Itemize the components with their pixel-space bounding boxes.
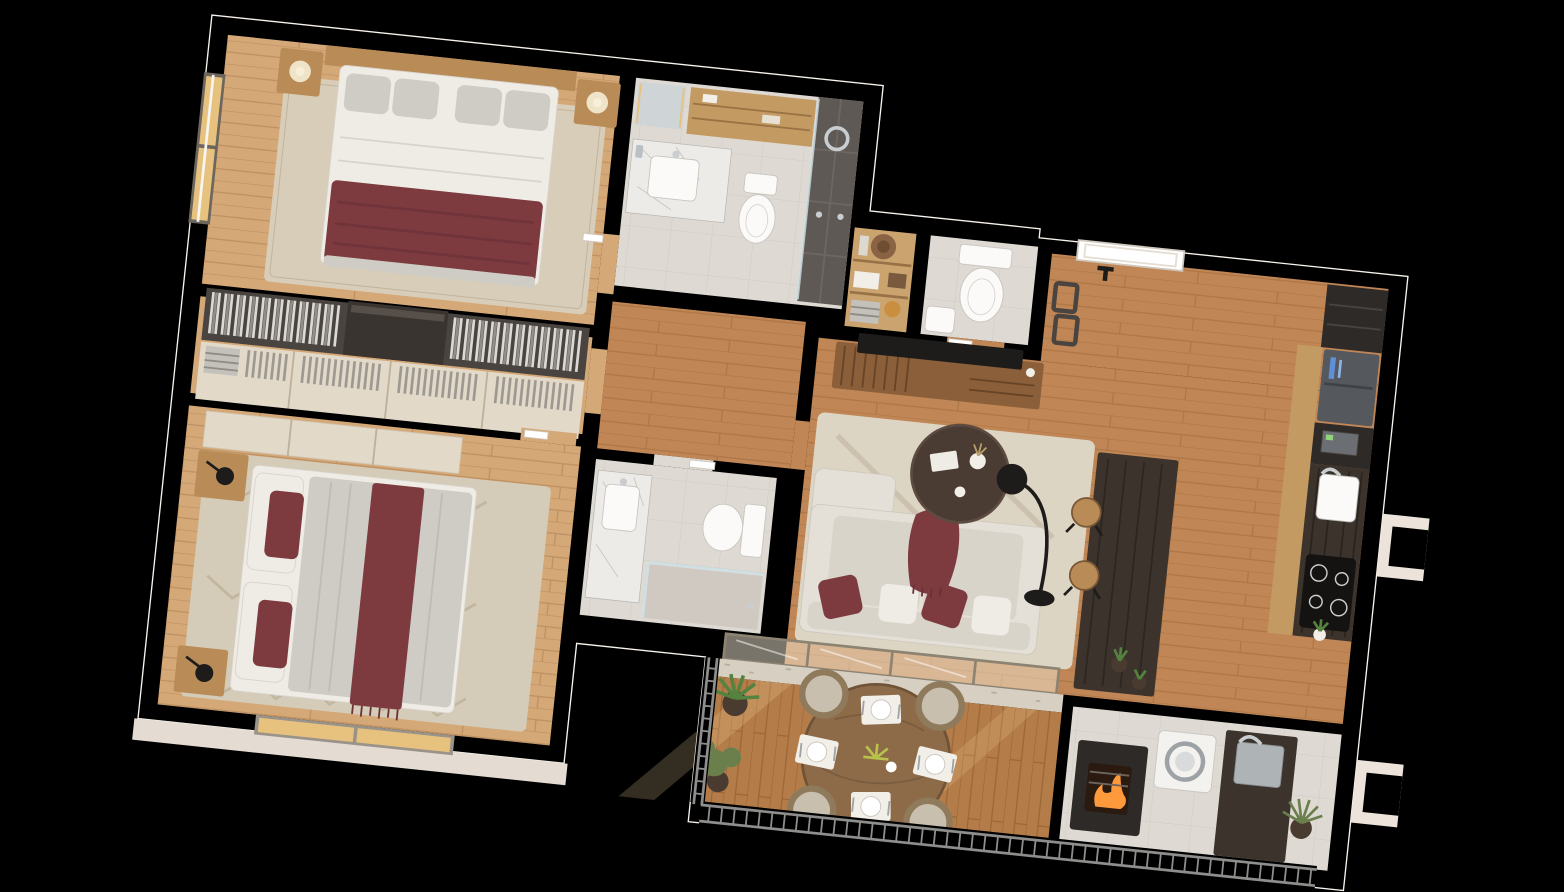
oven-microwave-tower xyxy=(1310,422,1373,469)
towel-stack xyxy=(849,299,880,323)
folded-clothes xyxy=(203,346,240,376)
pillow xyxy=(391,78,440,120)
bathroom-2 xyxy=(580,448,778,633)
wall-cabinets xyxy=(1321,284,1388,353)
place-setting xyxy=(858,691,905,729)
burgundy-pillow xyxy=(252,599,293,669)
bedroom2-nightstand-bottom xyxy=(173,645,228,697)
washing-machine xyxy=(1153,730,1216,793)
ensuite-mirror xyxy=(635,82,686,130)
render-canvas: 3D rendered top-down floor plan of a two… xyxy=(0,0,1564,892)
pillow xyxy=(502,89,551,131)
master-nightstand-left xyxy=(276,48,324,97)
burgundy-pillow xyxy=(264,490,305,560)
leather-box xyxy=(887,273,906,289)
laundry-counter xyxy=(1213,730,1298,863)
master-bedroom xyxy=(182,33,622,325)
pillow xyxy=(454,84,503,126)
book xyxy=(930,450,959,472)
white-box xyxy=(853,271,880,290)
induction-cooktop xyxy=(1299,554,1357,633)
floor-plan-render: 3D rendered top-down floor plan of a two… xyxy=(0,0,1564,892)
pillow xyxy=(343,73,392,115)
refrigerator xyxy=(1317,349,1380,426)
master-bed xyxy=(320,65,559,288)
wall-recess-lower xyxy=(1351,760,1404,828)
soap-bottles xyxy=(635,145,643,158)
dining-chair xyxy=(916,682,963,729)
kitchen-sink xyxy=(1316,474,1360,523)
ensuite-bathroom xyxy=(614,78,863,310)
bedroom2-bed xyxy=(228,465,477,727)
bedroom2-nightstand-top xyxy=(194,450,249,502)
dining-chair xyxy=(800,670,847,717)
wall-recess-upper xyxy=(1376,514,1429,582)
hall-storage-shelf xyxy=(844,227,916,332)
laundry-sink xyxy=(1233,742,1284,788)
master-door-leaf xyxy=(583,233,603,242)
ensuite-vanity xyxy=(626,139,732,223)
cream-pillow xyxy=(971,595,1013,637)
wc-corner-basin xyxy=(924,306,955,334)
barbecue-grill xyxy=(1069,740,1148,837)
master-nightstand-right xyxy=(573,79,621,128)
microwave-display xyxy=(1326,434,1334,440)
